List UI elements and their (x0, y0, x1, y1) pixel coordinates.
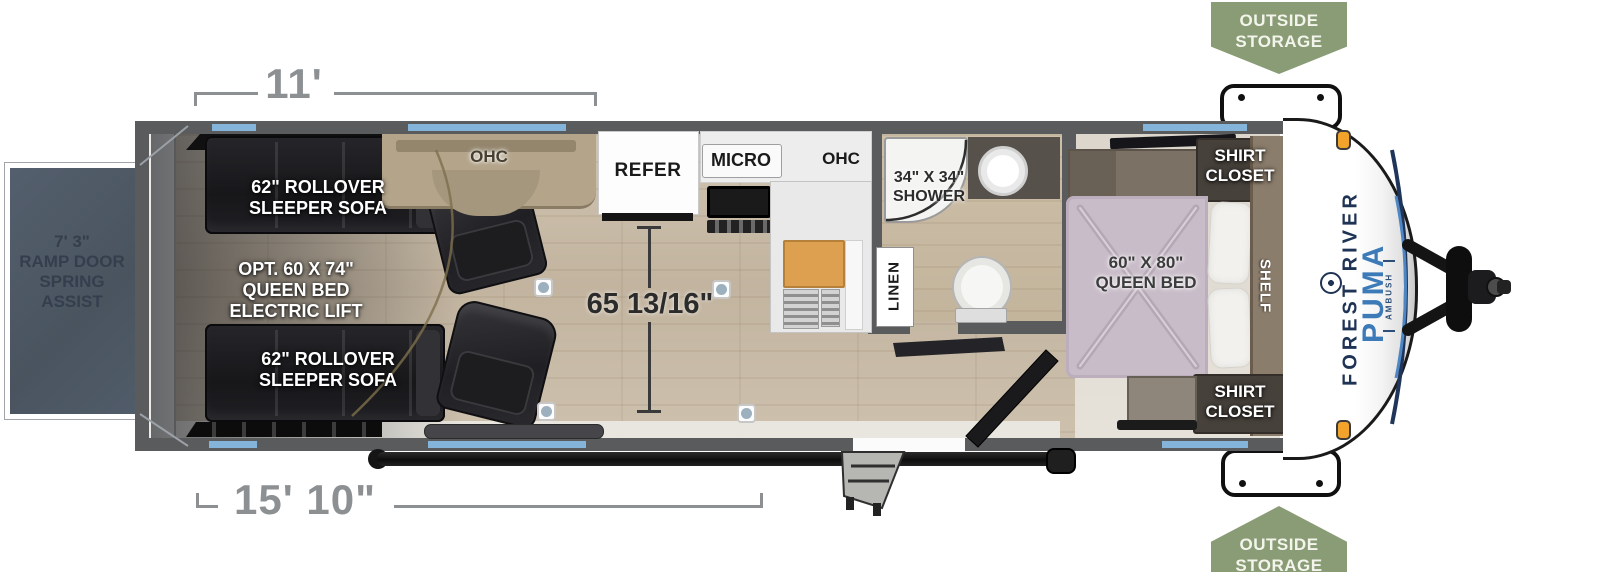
entry-door-opening (853, 438, 965, 451)
dim-line (196, 92, 258, 95)
toilet-tank (955, 308, 1007, 323)
latch-dot (1317, 94, 1324, 101)
ohc-right-label: OHC (815, 149, 867, 169)
dim-line (334, 92, 596, 95)
wall-rear (135, 121, 149, 451)
awning-roller-end (1046, 448, 1076, 474)
shirt-closet-bottom-label: SHIRT CLOSET (1196, 382, 1284, 421)
floorplan-canvas: 11' 15' 10" 7' 3" RAMP DOOR SPRING ASSIS… (0, 0, 1600, 572)
latch-dot (1239, 480, 1246, 487)
latch-dot (1316, 480, 1323, 487)
bed-lift-rail-bottom (186, 422, 382, 437)
tongue-hitch (1408, 245, 1511, 332)
floor-outlet (534, 278, 553, 297)
marker-light-top (1336, 130, 1351, 150)
sofa-top-label: 62" ROLLOVER SLEEPER SOFA (238, 177, 398, 219)
queen-bed-label: 60" X 80" QUEEN BED (1074, 253, 1218, 294)
bedroom-dresser (1068, 149, 1202, 201)
refrigerator-label: REFER (612, 160, 684, 182)
window-top-3 (1143, 124, 1247, 131)
dim-label-cargo: 15' 10" (218, 476, 392, 524)
floor-outlet (537, 402, 556, 421)
window-top-2 (408, 124, 566, 131)
cutting-board (783, 240, 845, 288)
counter-edge-panel (845, 240, 863, 330)
shirt-closet-top-label: SHIRT CLOSET (1196, 146, 1284, 185)
sink-cover-vent (821, 289, 840, 327)
window-bottom-3 (1162, 441, 1248, 448)
awning-rail (377, 452, 1053, 466)
bathroom-sink (978, 146, 1028, 196)
media-console (424, 424, 604, 439)
dim-line (394, 505, 762, 508)
ramp-door-label: 7' 3" RAMP DOOR SPRING ASSIST (8, 232, 136, 312)
sofa-bottom-label: 62" ROLLOVER SLEEPER SOFA (248, 349, 408, 391)
brand-series: AMBUSH (1383, 260, 1395, 332)
marker-light-bottom (1336, 420, 1351, 440)
shower-label: 34" X 34" SHOWER (885, 168, 973, 206)
linen-label: LINEN (876, 247, 912, 325)
sink-cover-vent (783, 289, 819, 329)
dim-tick (594, 92, 597, 106)
opt-queen-label: OPT. 60 X 74" QUEEN BED ELECTRIC LIFT (215, 259, 377, 322)
microwave-label: MICRO (706, 150, 776, 171)
latch-dot (1238, 94, 1245, 101)
microwave-cavity (707, 186, 771, 218)
dim-cap (637, 410, 661, 413)
pillow (1207, 287, 1253, 369)
window-bottom-1 (209, 441, 257, 448)
window-bottom-2 (428, 441, 586, 448)
refrigerator-base (602, 213, 693, 221)
dim-line (196, 505, 218, 508)
dim-vline (648, 226, 651, 288)
dim-label-garage: 11' (252, 60, 336, 108)
outside-storage-badge-bottom: OUTSIDE STORAGE (1211, 506, 1347, 572)
dim-tick (760, 493, 763, 508)
dresser-section (1070, 151, 1116, 199)
ohc-left-label: OHC (460, 147, 518, 167)
floor-outlet (737, 404, 756, 423)
shelf-label: SHELF (1252, 248, 1278, 324)
range-burners (707, 220, 771, 233)
bed-step (1117, 420, 1197, 430)
window-top-1 (212, 124, 256, 131)
dim-vline (648, 322, 651, 412)
outside-storage-badge-top: OUTSIDE STORAGE (1211, 2, 1347, 74)
wall-bottom (135, 438, 1303, 451)
nightstand (1127, 376, 1197, 426)
forest-river-logo-icon (1320, 272, 1342, 294)
dim-label-interior-width: 65 13/16" (575, 288, 725, 321)
